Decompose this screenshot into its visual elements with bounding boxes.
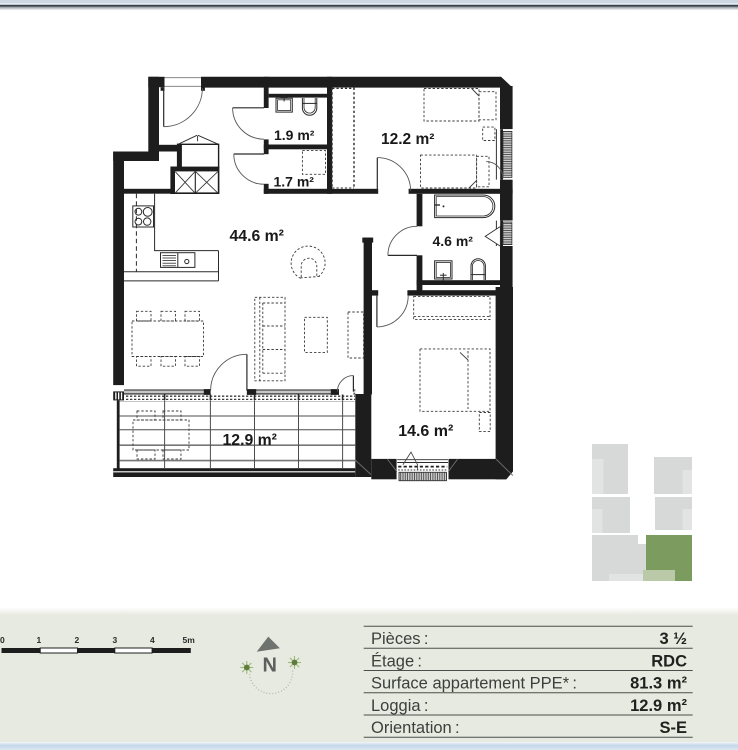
svg-text:4: 4 [150, 635, 155, 645]
svg-text:1.9 m²: 1.9 m² [274, 127, 315, 143]
svg-text:Surface appartement PPE* :: Surface appartement PPE* : [371, 675, 577, 693]
svg-text:1: 1 [37, 635, 42, 645]
svg-text:Orientation :: Orientation : [371, 719, 460, 737]
svg-text:12.9 m²: 12.9 m² [630, 697, 687, 715]
svg-text:RDC: RDC [651, 652, 687, 670]
svg-text:0: 0 [0, 635, 5, 645]
svg-text:81.3 m²: 81.3 m² [630, 675, 687, 693]
svg-text:3: 3 [113, 635, 118, 645]
svg-text:Loggia :: Loggia : [371, 697, 428, 715]
svg-text:12.9 m²: 12.9 m² [223, 432, 277, 449]
svg-text:Étage :: Étage : [371, 651, 422, 670]
svg-text:5m: 5m [183, 635, 196, 645]
svg-text:3 ½: 3 ½ [659, 630, 687, 648]
svg-text:S-E: S-E [659, 719, 687, 737]
svg-text:2: 2 [75, 635, 80, 645]
svg-text:4.6 m²: 4.6 m² [433, 233, 474, 249]
svg-text:1.7 m²: 1.7 m² [274, 174, 315, 190]
svg-text:N: N [263, 655, 277, 677]
svg-text:14.6 m²: 14.6 m² [398, 423, 453, 440]
svg-text:Pièces :: Pièces : [371, 630, 428, 648]
svg-text:44.6 m²: 44.6 m² [230, 228, 284, 245]
svg-text:12.2 m²: 12.2 m² [381, 131, 434, 148]
